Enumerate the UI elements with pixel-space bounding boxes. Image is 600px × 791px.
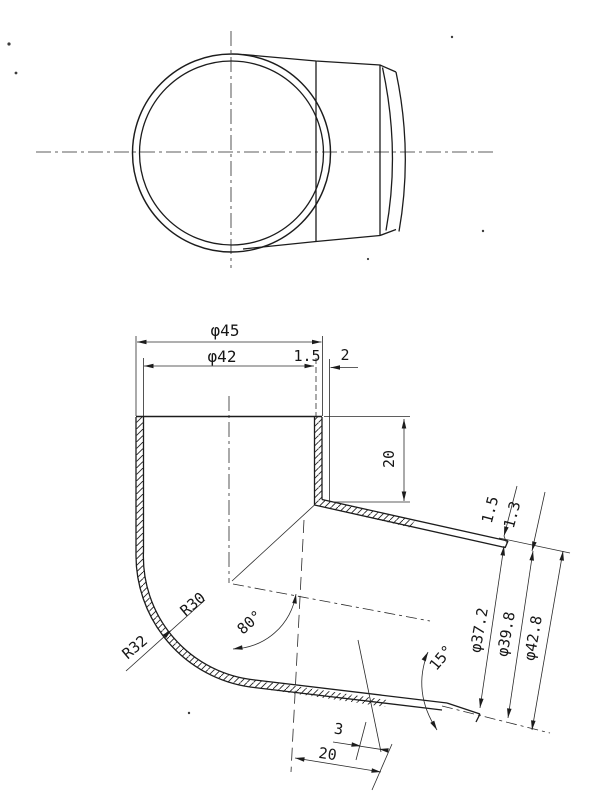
dim-wall-thickness-label: 1.5 xyxy=(293,347,320,365)
left-wall-hatch xyxy=(136,417,387,707)
elbow-fitting-drawing: φ45 φ42 1.5 2 20 R30 R32 80° xyxy=(0,0,600,791)
outer-rim-circle xyxy=(133,54,331,252)
dim-offset-label: 2 xyxy=(340,346,349,364)
section-view: φ45 φ42 1.5 2 20 R30 R32 80° xyxy=(119,321,570,790)
end-wall-dimensions: 1.5 1.3 xyxy=(478,486,570,553)
dim-end-wall-a-label: 1.5 xyxy=(478,494,502,525)
end-diameter-dimensions: φ37.2 φ39.8 φ42.8 xyxy=(466,546,565,731)
dim-end-dia-1-label: φ37.2 xyxy=(466,606,492,654)
taper-angle-dimension: 15° xyxy=(422,642,457,732)
dim-end-len-a-label: 3 xyxy=(333,720,344,739)
dim-outer-diameter-label: φ45 xyxy=(211,321,240,340)
dim-end-dia-2-label: φ39.8 xyxy=(493,610,519,658)
top-view xyxy=(36,31,497,268)
end-length-dimensions: 3 20 xyxy=(295,640,392,790)
dim-end-dia-3-label: φ42.8 xyxy=(520,614,546,662)
dim-bend-radius-outer-label2: R32 xyxy=(119,632,151,663)
socket-depth-dimension: 20 xyxy=(324,417,410,503)
steep-phantom-line xyxy=(291,520,304,772)
inner-bore-circle xyxy=(140,61,324,245)
dim-bend-radius-inner-label: R30 xyxy=(177,589,209,620)
dim-taper-angle-label: 15° xyxy=(426,642,457,674)
dim-bend-angle-label: 80° xyxy=(234,607,266,639)
top-dimensions: φ45 φ42 1.5 2 xyxy=(136,321,358,502)
section-walls xyxy=(136,417,508,723)
dim-inner-diameter-label: φ42 xyxy=(208,347,237,366)
dim-end-len-b-label: 20 xyxy=(317,744,337,764)
technical-drawing-page: φ45 φ42 1.5 2 20 R30 R32 80° xyxy=(0,0,600,791)
dim-socket-depth-label: 20 xyxy=(380,450,398,468)
angled-port-centerline xyxy=(233,584,430,621)
dim-end-wall-b-label: 1.3 xyxy=(500,499,524,530)
